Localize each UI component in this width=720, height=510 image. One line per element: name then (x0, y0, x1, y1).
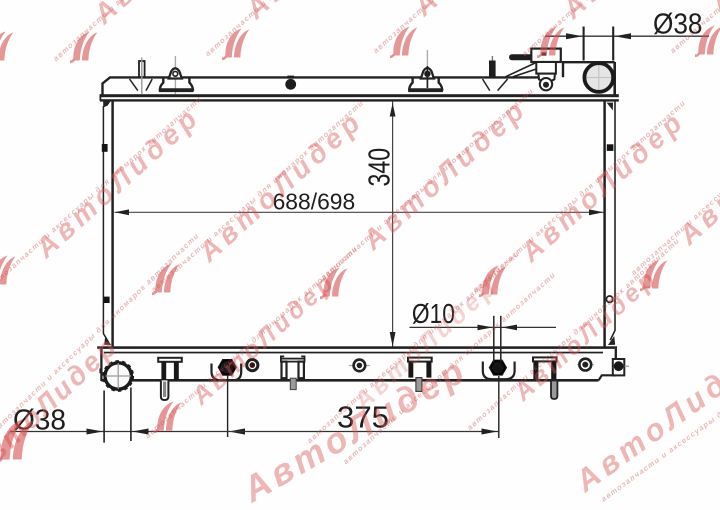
svg-text:Ø38: Ø38 (653, 9, 703, 41)
svg-text:688/698: 688/698 (273, 189, 356, 215)
svg-text:375: 375 (337, 401, 389, 435)
svg-text:340: 340 (361, 148, 396, 187)
svg-text:Ø10: Ø10 (412, 298, 455, 329)
svg-text:Ø38: Ø38 (13, 405, 66, 437)
